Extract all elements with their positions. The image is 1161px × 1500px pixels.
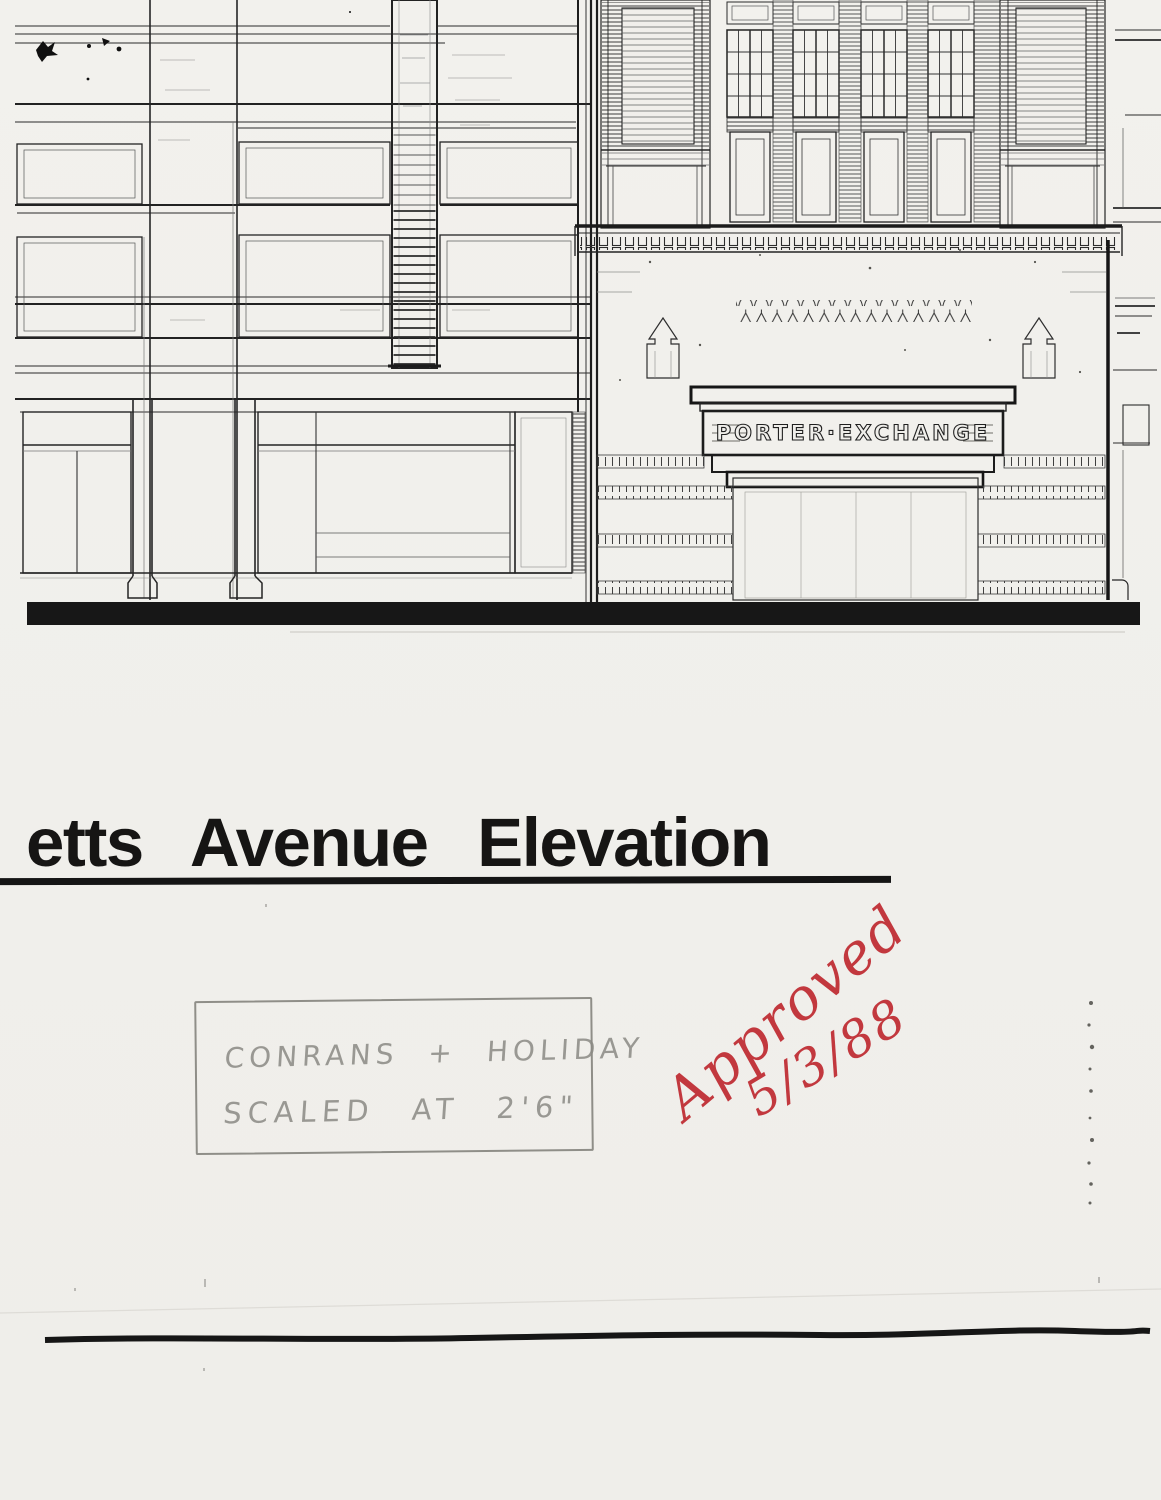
note-line-1: CONRANS + HOLIDAY xyxy=(224,1031,646,1074)
far-right-wall xyxy=(1113,30,1161,578)
porter-exchange-sign: PORTER·EXCHANGE xyxy=(691,387,1015,487)
finial-left xyxy=(647,318,679,378)
stitch-marks xyxy=(1087,1001,1094,1205)
hatched-pier xyxy=(388,0,441,368)
approval-stamp: Approved 5/3/88 xyxy=(652,851,1037,1213)
storefront xyxy=(20,399,585,598)
window-bays xyxy=(727,0,1000,222)
approval-word: Approved xyxy=(652,893,920,1133)
right-brick-pier xyxy=(1000,0,1105,228)
right-building: PORTER·EXCHANGE xyxy=(575,0,1161,602)
note-line-2: SCALED AT 2'6" xyxy=(222,1090,580,1131)
title-underline xyxy=(0,876,891,885)
wall-hatch-dashes xyxy=(158,55,512,320)
ink-specks xyxy=(36,11,351,80)
scanned-page: PORTER·EXCHANGE xyxy=(0,0,1161,1500)
chevron-frieze xyxy=(736,300,972,322)
bottom-rule xyxy=(45,1330,1150,1340)
upper-windows xyxy=(17,142,578,204)
upper-wall xyxy=(597,249,1106,381)
finial-right xyxy=(1023,318,1055,378)
elevation-drawing: PORTER·EXCHANGE xyxy=(0,0,1161,650)
sign-text: PORTER·EXCHANGE xyxy=(716,421,990,445)
left-brick-pier xyxy=(601,0,710,228)
entry-storefront xyxy=(733,478,978,600)
right-border xyxy=(1108,240,1128,600)
brick-tick-bands xyxy=(597,455,1105,594)
middle-windows xyxy=(17,235,578,337)
note-box: CONRANS + HOLIDAY SCALED AT 2'6" xyxy=(194,997,594,1155)
page-title: etts Avenue Elevation xyxy=(26,808,770,877)
approval-date: 5/3/88 xyxy=(735,986,918,1128)
ground-line xyxy=(27,602,1140,625)
paper-crease xyxy=(0,1289,1161,1313)
left-building xyxy=(15,0,591,602)
dentil-cornice xyxy=(575,226,1122,256)
